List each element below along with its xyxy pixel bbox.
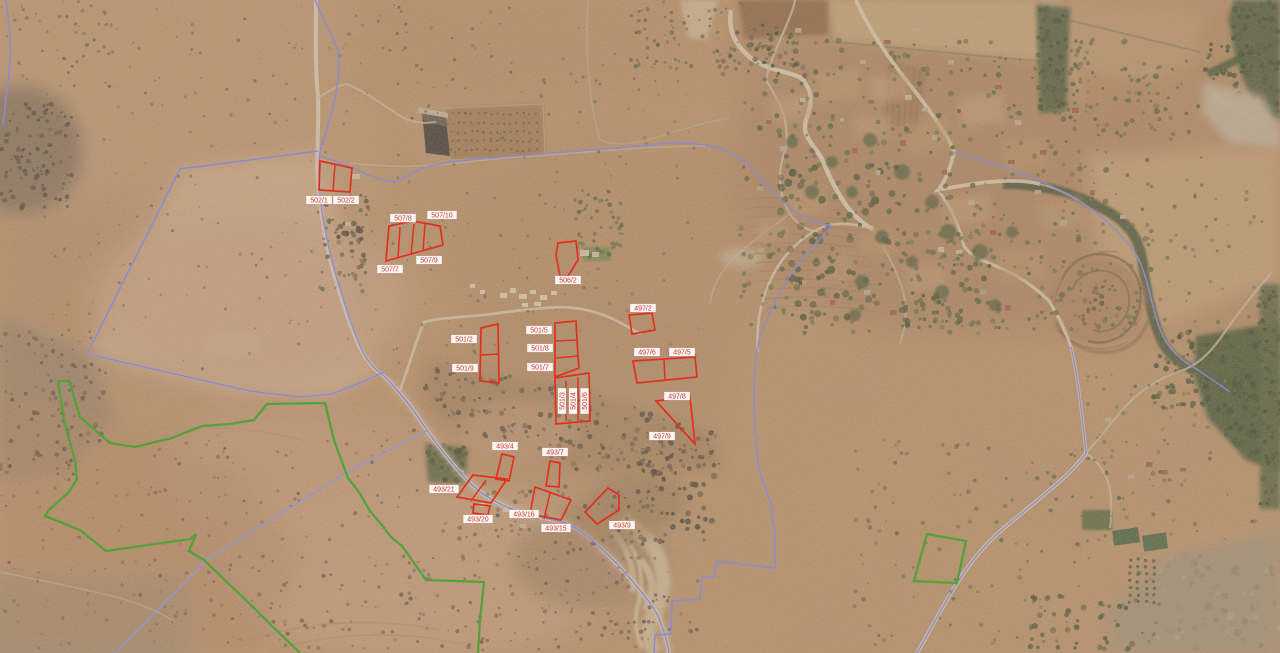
svg-text:501/4: 501/4 [570,392,577,410]
svg-text:497/6: 497/6 [638,349,656,356]
svg-text:501/5: 501/5 [530,327,548,334]
svg-text:502/2: 502/2 [337,197,355,204]
svg-text:501/8: 501/8 [531,345,549,352]
svg-text:497/5: 497/5 [673,349,691,356]
svg-text:507/7: 507/7 [381,266,399,273]
svg-text:506/2: 506/2 [559,277,577,284]
svg-text:507/9: 507/9 [420,257,438,264]
svg-text:497/8: 497/8 [668,393,686,400]
svg-text:493/21: 493/21 [433,486,455,493]
svg-text:493/4: 493/4 [496,443,514,450]
svg-text:493/15: 493/15 [545,525,567,532]
svg-text:497/9: 497/9 [653,433,671,440]
svg-text:501/3: 501/3 [559,392,566,410]
svg-text:501/7: 501/7 [531,364,549,371]
svg-text:507/10: 507/10 [431,212,453,219]
svg-text:501/2: 501/2 [455,336,473,343]
svg-text:501/6: 501/6 [582,392,589,410]
svg-text:497/2: 497/2 [634,305,652,312]
svg-text:501/9: 501/9 [456,365,474,372]
svg-text:507/8: 507/8 [394,215,412,222]
svg-text:493/20: 493/20 [467,516,489,523]
svg-text:502/1: 502/1 [310,197,328,204]
svg-text:493/16: 493/16 [513,511,535,518]
svg-text:493/7: 493/7 [546,449,564,456]
svg-text:493/9: 493/9 [613,522,631,529]
